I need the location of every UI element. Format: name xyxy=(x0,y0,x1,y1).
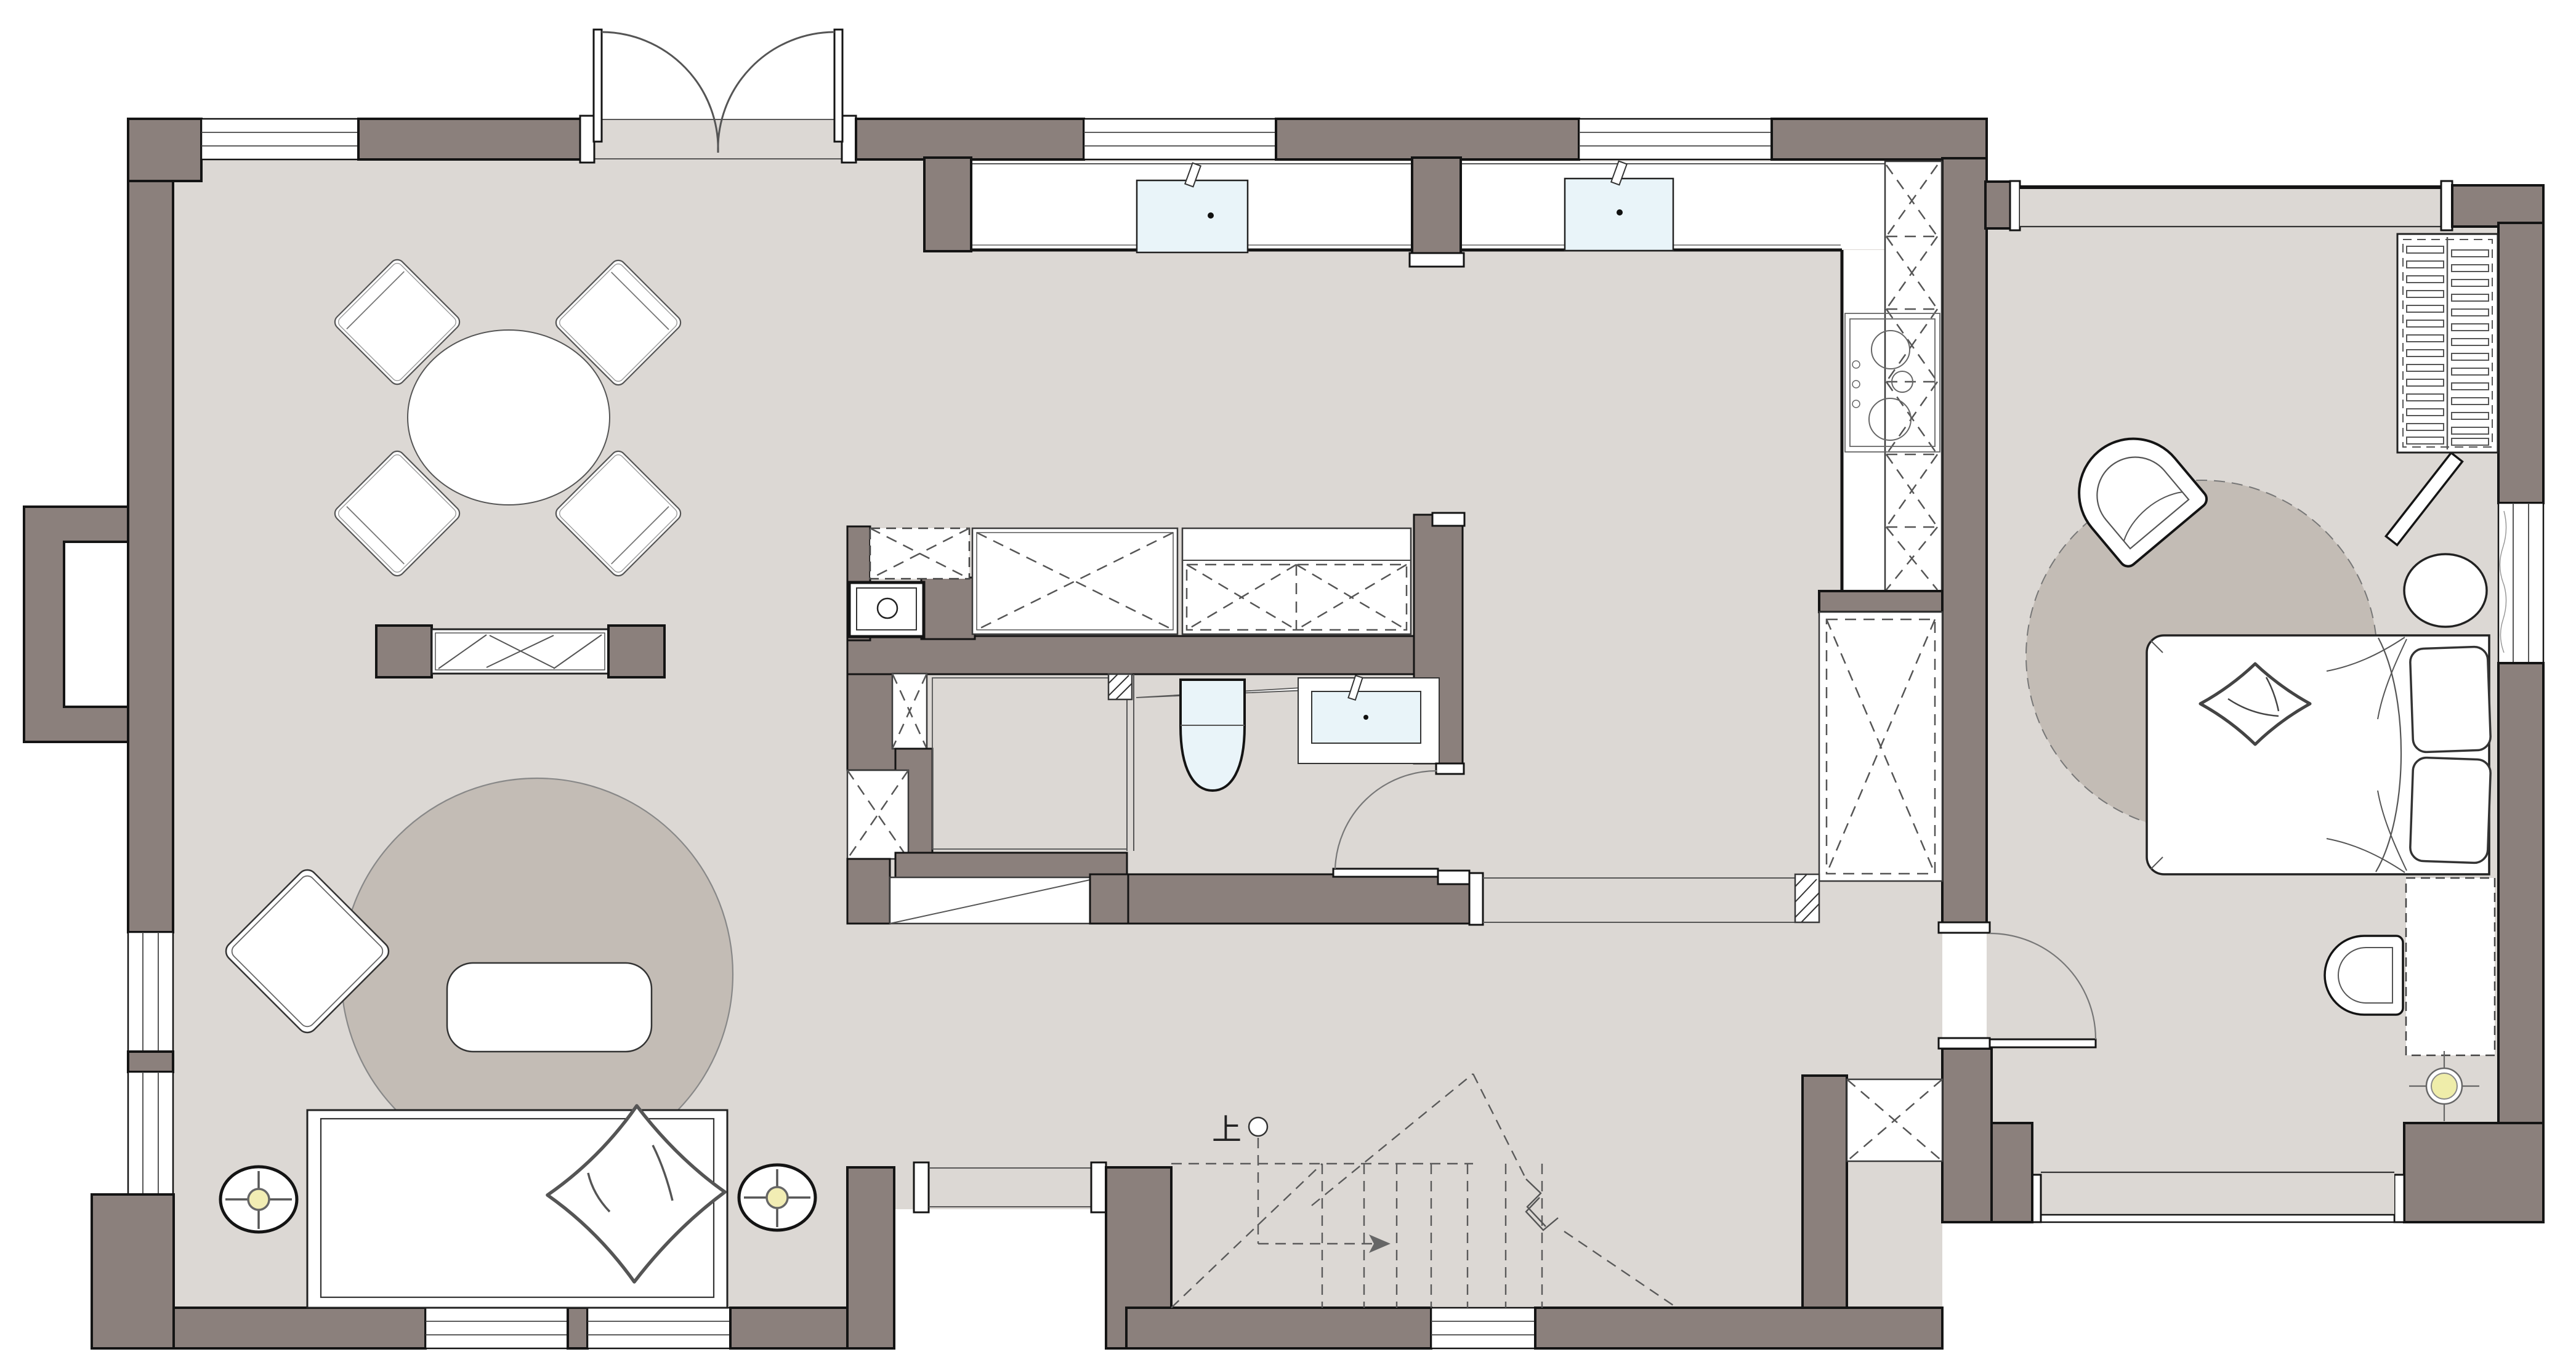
svg-text:上: 上 xyxy=(1212,1114,1242,1146)
